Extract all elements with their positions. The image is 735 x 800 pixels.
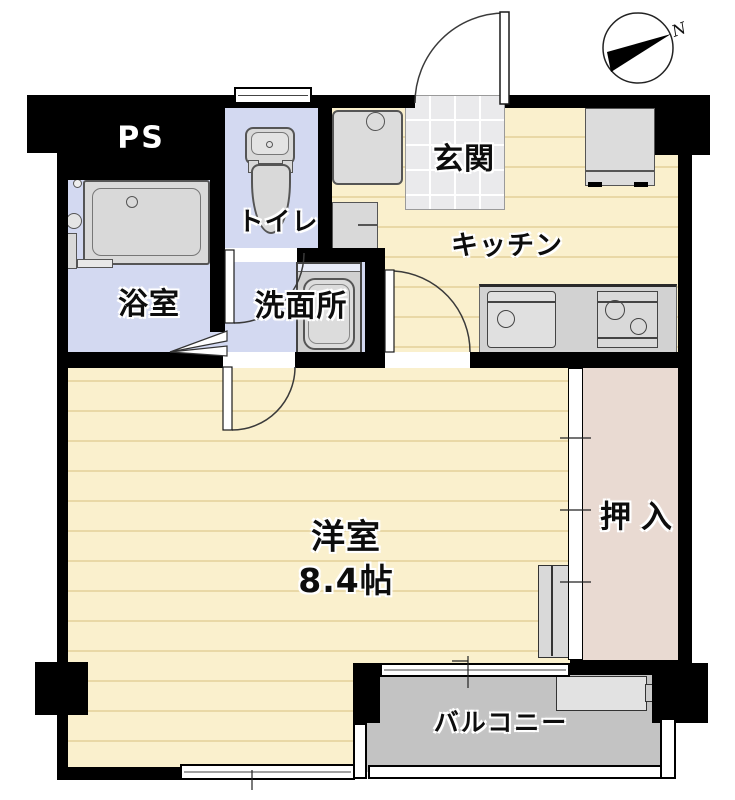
label-kitchen: キッチン xyxy=(451,224,563,263)
label-bath: 浴室 xyxy=(118,279,180,323)
label-closet: 押入 xyxy=(600,492,682,537)
kitchen-door-leaf xyxy=(385,270,394,352)
label-entrance: 玄関 xyxy=(433,134,495,178)
toilet-door-leaf xyxy=(225,250,234,323)
washroom-door-arc xyxy=(232,367,295,430)
fusuma-ticks xyxy=(560,438,591,582)
bath-folding-door-icon-2 xyxy=(170,346,227,356)
entrance-door-leaf xyxy=(500,12,509,104)
door-symbols-layer xyxy=(0,0,735,800)
label-ps: PS xyxy=(117,121,165,156)
label-western-room: 洋室 xyxy=(311,510,381,559)
washroom-door-leaf xyxy=(223,367,232,430)
compass-icon: N xyxy=(598,6,703,91)
kitchen-door-arc xyxy=(394,271,470,352)
label-washroom: 洗面所 xyxy=(255,281,348,325)
label-western-room-size: 8.4帖 xyxy=(298,554,393,602)
floor-plan: PS トイレ 玄関 キッチン 浴室 洗面所 洋室 8.4帖 押入 バルコニー N xyxy=(0,0,735,800)
entrance-door-arc xyxy=(415,13,505,103)
label-balcony: バルコニー xyxy=(434,703,569,739)
label-toilet: トイレ xyxy=(237,202,318,239)
balcony-window-tick xyxy=(452,656,468,688)
